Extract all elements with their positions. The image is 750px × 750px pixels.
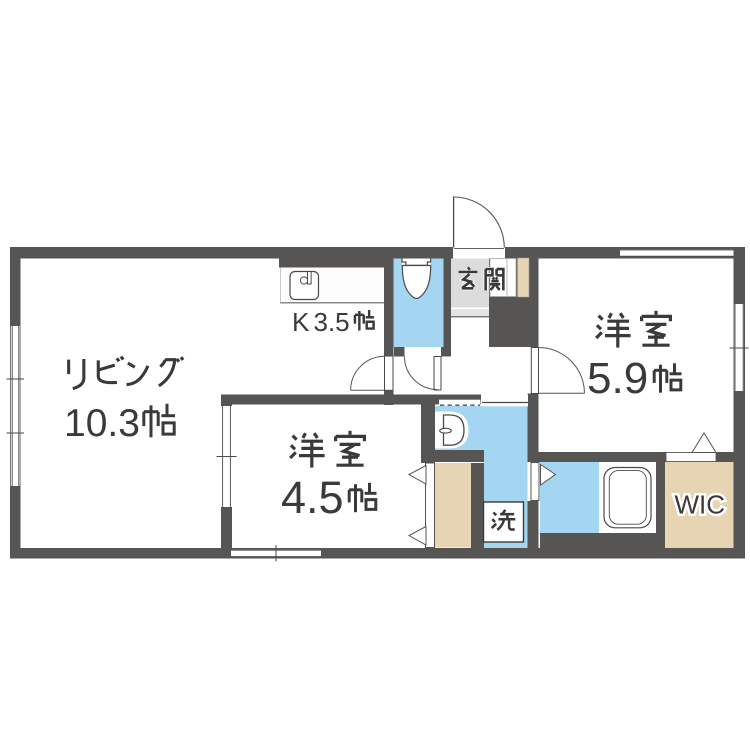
svg-text:3.5: 3.5	[314, 307, 350, 337]
svg-text:4.5: 4.5	[281, 472, 344, 523]
svg-text:WIC: WIC	[675, 490, 726, 520]
svg-text:10.3: 10.3	[64, 402, 140, 445]
svg-text:5.9: 5.9	[587, 354, 648, 403]
svg-text:K: K	[292, 307, 310, 337]
